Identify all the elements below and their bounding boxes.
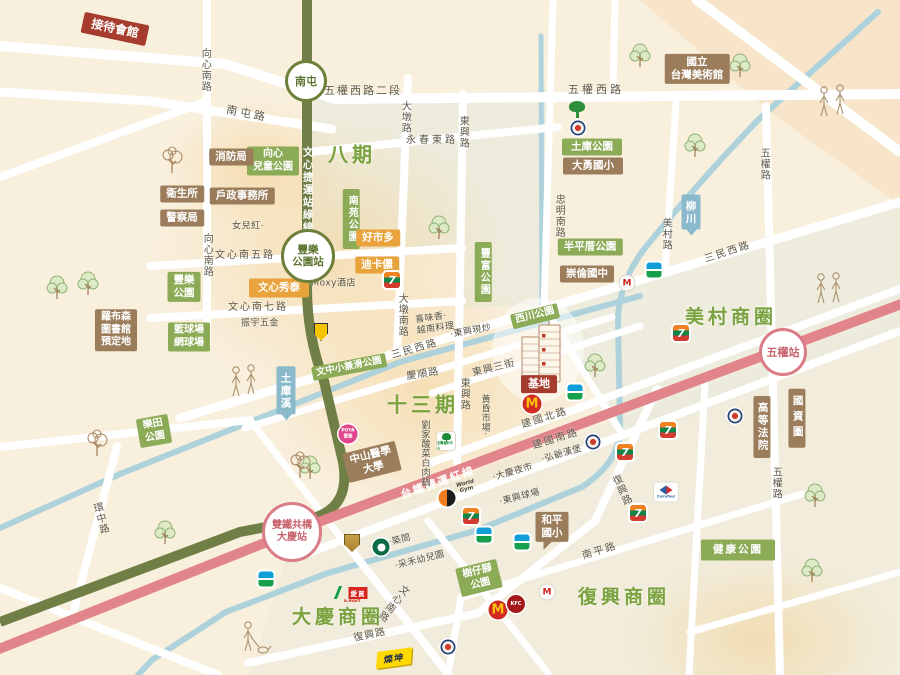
- starbucks-icon: [373, 539, 390, 556]
- station-wuquan: 五權站: [759, 328, 807, 376]
- facility-health-center: 衛生所: [160, 185, 204, 202]
- pxmart-icon: 全聯福利中心: [437, 432, 455, 450]
- facility-household-office: 戶政事務所: [210, 187, 275, 204]
- school-badge-icon: [586, 435, 601, 450]
- school-badge-icon: [441, 640, 456, 655]
- poya-icon: POYA 寶雅: [339, 425, 358, 444]
- district-meicun: 美村商圈: [685, 306, 777, 330]
- facility-heping-school: 和平 國小: [536, 512, 569, 542]
- facility-chonglun-school: 崇倫國中: [560, 265, 614, 282]
- park-xiangxin-kids: 向心 兒童公園: [247, 147, 299, 176]
- station-daqing: 雙鐵共構 大慶站: [262, 502, 322, 562]
- park-banping: 半平厝公園: [558, 238, 623, 255]
- school-badge-icon: [728, 409, 743, 424]
- location-map: 向心南路 向心南路 南屯路 五權西路二段 五權西路 大墩路 大墩南路 東興路 東…: [0, 0, 900, 675]
- mcdonalds-icon: M: [489, 601, 508, 620]
- park-tree-icon: [568, 101, 586, 119]
- district-daqing: 大慶商圈: [292, 606, 384, 630]
- seven-eleven-icon: 7: [660, 422, 676, 438]
- road-label-wuquan-w: 五權西路: [568, 83, 624, 97]
- facility-police: 警察局: [160, 209, 204, 226]
- poi-zhenyu-hardware: 振宇五金: [241, 318, 279, 329]
- carrefour-icon: Carrefour: [654, 483, 678, 502]
- shop-decathlon: 迪卡儂: [355, 256, 399, 273]
- road-label-wuquan-s: 五權路: [769, 467, 782, 500]
- road-label-wuquan-n: 五權路: [757, 148, 770, 181]
- road-label-xiangxin-n: 向心南路: [198, 48, 211, 92]
- facility-nlpi: 國資圖: [788, 389, 805, 448]
- station-nantun: 南屯: [285, 60, 327, 102]
- mcdonalds-icon: M: [523, 395, 542, 414]
- worldgym-icon: [439, 490, 456, 507]
- river-tag-tukuxi: 土庫溪: [277, 366, 296, 414]
- familymart-icon: [477, 528, 492, 543]
- seven-eleven-icon: 7: [384, 272, 400, 288]
- district-fuxing: 復興商圈: [578, 586, 670, 610]
- road-label-wenxin-s7: 文心南七路: [228, 302, 288, 315]
- familymart-icon: [568, 385, 583, 400]
- facility-art-museum: 國立 台灣美術館: [665, 54, 730, 84]
- seven-eleven-icon: 7: [617, 444, 633, 460]
- site-base-tag: 基地: [521, 375, 557, 393]
- road-label-yongchun: 永春東路: [406, 135, 458, 148]
- amart-icon: 愛買 a.mart: [337, 586, 368, 604]
- facility-dayong-school: 大勇國小: [563, 157, 623, 174]
- poi-nverhong: 女兒紅·: [232, 221, 264, 232]
- kfc-icon: KFC: [507, 595, 525, 613]
- road-label-zhongming: 忠明南路: [552, 194, 565, 238]
- poi-evening-market: 黃昏市場·: [478, 394, 489, 435]
- seven-eleven-icon: 7: [630, 505, 646, 521]
- road-label-meicun-rd: 美村路: [659, 218, 672, 251]
- district-baqi: 八期: [328, 143, 376, 168]
- station-fengle-park: 豐樂 公園站: [281, 229, 335, 283]
- school-badge-icon: [571, 121, 586, 136]
- seven-eleven-icon: 7: [673, 325, 689, 341]
- district-shisanqi: 十三期: [387, 393, 459, 418]
- park-fengle: 豐樂 公園: [168, 272, 201, 302]
- mrt-green-line-label: 文心捷運站綠線: [300, 146, 313, 234]
- park-jiankang: 健康公園: [701, 539, 775, 560]
- seven-eleven-icon: 7: [463, 508, 479, 524]
- road-label-wenxin-s5: 文心南五路: [215, 250, 275, 263]
- road-label-xiangxin-s: 向心南路: [200, 233, 213, 277]
- familymart-icon: [647, 263, 662, 278]
- familymart-icon: [259, 572, 274, 587]
- poi-liujia-restaurant: 劉家酸菜白肉鍋·: [419, 420, 430, 462]
- facility-high-court: 高等法院: [753, 396, 770, 458]
- road-label-dadun: 大墩路: [398, 101, 411, 134]
- park-fengfu: 豐富公園: [475, 242, 492, 302]
- park-tuku: 土庫公園: [562, 138, 622, 155]
- mos-burger-icon: M: [539, 584, 556, 601]
- park-courts: 籃球場 網球場: [168, 323, 210, 352]
- familymart-icon: [515, 535, 530, 550]
- park-letian: 樂田 公園: [136, 414, 173, 448]
- shop-costco: 好市多: [356, 229, 400, 246]
- mos-burger-icon: M: [619, 275, 636, 292]
- road-label-wuquan-w2: 五權西路二段: [324, 84, 402, 98]
- road-label-dadun-s: 大墩南路: [395, 293, 408, 337]
- facility-library-site: 羅布森 圖書館 預定地: [95, 309, 137, 351]
- river-tag-liuchuan: 柳川: [682, 195, 701, 230]
- facility-fire-station: 消防局: [209, 148, 253, 165]
